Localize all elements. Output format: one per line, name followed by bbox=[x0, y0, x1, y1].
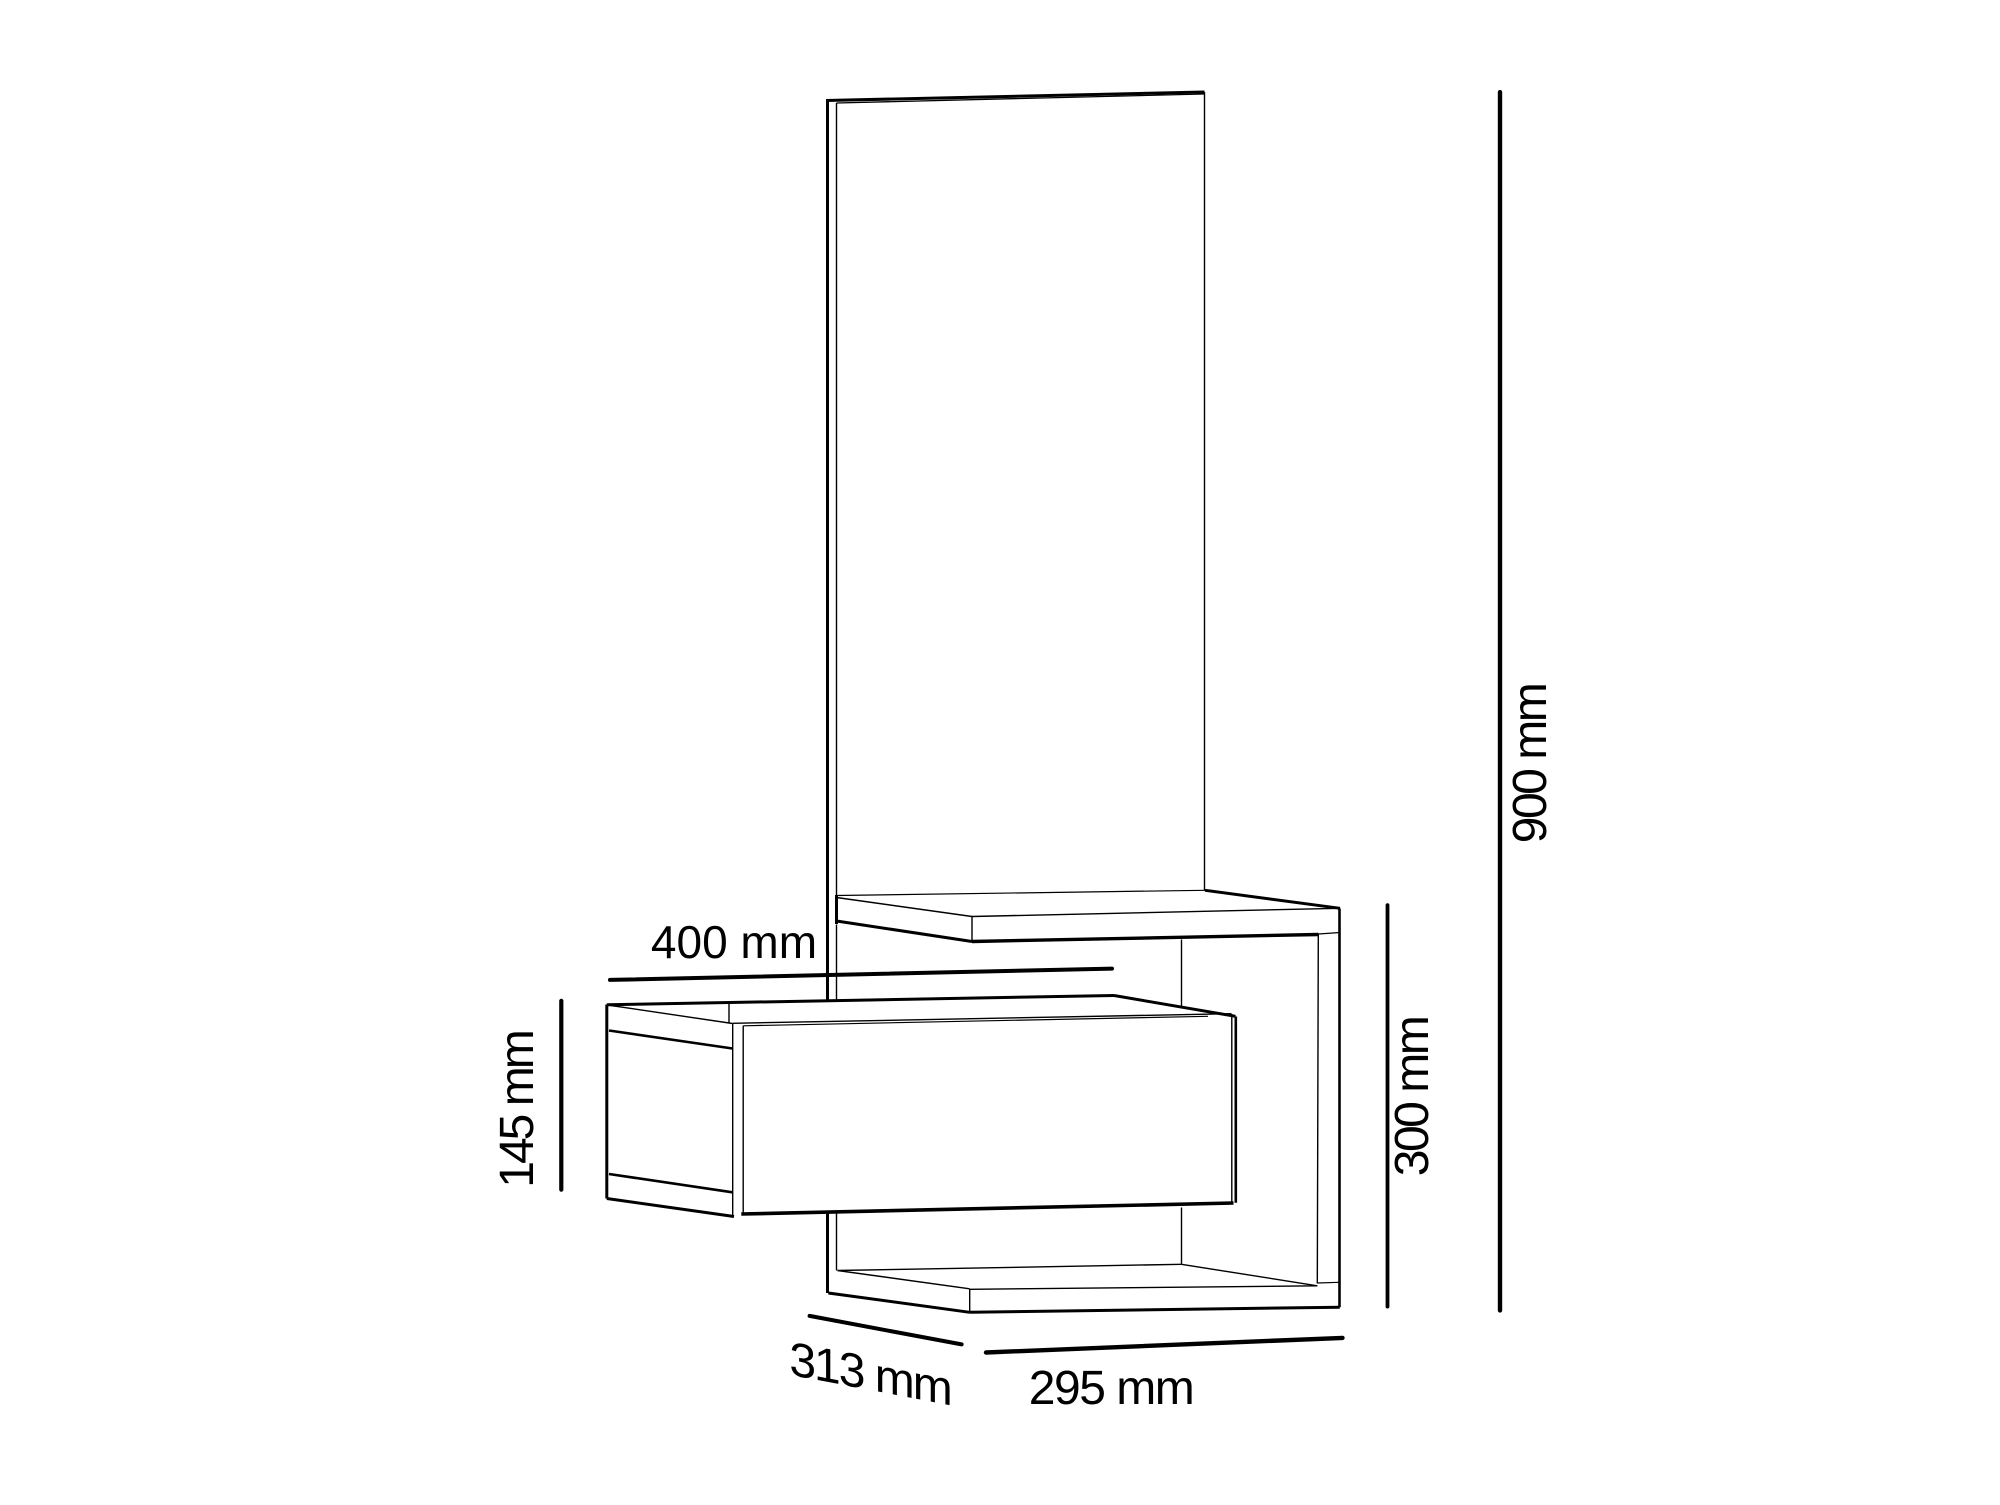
svg-text:295 mm: 295 mm bbox=[1029, 1362, 1193, 1415]
svg-text:300 mm: 300 mm bbox=[1386, 1018, 1439, 1176]
svg-text:900 mm: 900 mm bbox=[1504, 685, 1557, 843]
svg-text:400 mm: 400 mm bbox=[651, 916, 817, 968]
svg-text:145 mm: 145 mm bbox=[491, 1032, 544, 1187]
